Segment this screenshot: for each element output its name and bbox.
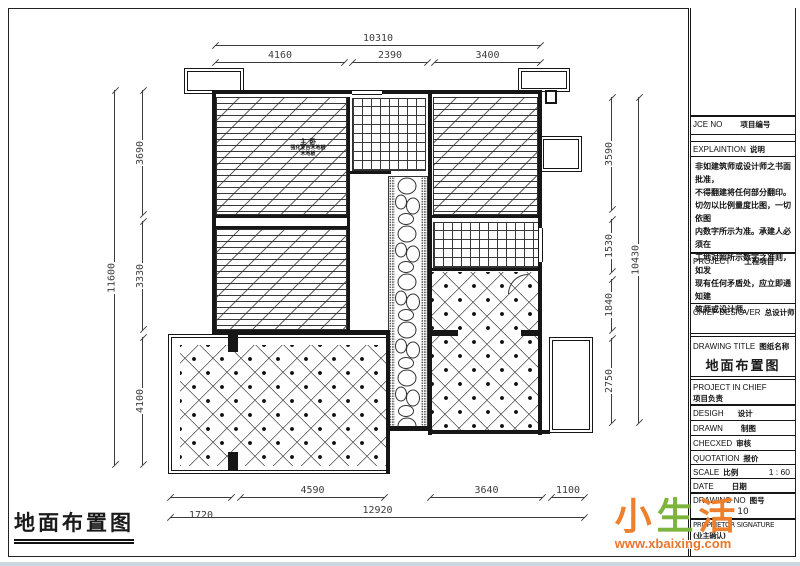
dim-left-seg3: 4100	[142, 337, 143, 465]
dim-bottom-seg2: 4590	[240, 497, 385, 498]
dim-label: 10310	[362, 34, 394, 44]
dim-label: 1720	[188, 511, 214, 521]
chief-designer-label-zh: 总设计师	[765, 307, 795, 318]
wall	[386, 426, 432, 431]
divider	[691, 141, 795, 142]
dim-label: 2750	[605, 367, 615, 393]
dim-label: 11600	[107, 261, 117, 293]
dim-left-seg2: 3330	[142, 221, 143, 330]
dim-bottom-overall: 12920	[170, 517, 585, 518]
project-label-en: PROJECT	[693, 257, 730, 266]
dim-right-seg4: 2750	[611, 338, 612, 423]
dim-right-seg2: 1530	[611, 219, 612, 272]
dim-bottom-seg4: 1100	[551, 497, 585, 498]
titleblock-row-checked: CHECXED 审核	[693, 438, 794, 449]
pebble-pattern	[395, 177, 421, 427]
titleblock-row-project: PROJECT 工程项目	[693, 256, 794, 267]
wall	[386, 334, 390, 474]
diamond-tile-living-room	[180, 345, 386, 466]
titleblock-row-project-in-chief-zh: 项目负责	[693, 393, 794, 404]
divider	[691, 156, 795, 157]
watermark: 小 生 活 www.xbaixing.com	[608, 496, 738, 551]
wall	[428, 94, 432, 435]
wall	[432, 268, 542, 271]
dim-left-overall: 11600	[114, 90, 115, 465]
divider	[691, 303, 795, 304]
dim-right-seg3: 1840	[611, 279, 612, 331]
watermark-char: 生	[657, 494, 690, 538]
dim-label: 4590	[299, 486, 325, 496]
dim-label: 3400	[474, 51, 500, 61]
walkway-stipple-right	[421, 177, 427, 427]
explanation-label-zh: 说明	[750, 144, 765, 155]
bay-window-right-upper	[540, 136, 582, 172]
wall	[212, 94, 216, 334]
titleblock-row-chief-designer: CHIEF DESIGVER 总设计师	[693, 307, 794, 318]
wall-stub	[428, 330, 458, 336]
wood-floor-bedroom-3	[433, 97, 538, 215]
dim-left-seg1: 3690	[142, 90, 143, 215]
dim-right-overall: 10430	[638, 97, 639, 423]
project-in-chief-label-zh: 项目负责	[693, 393, 723, 404]
titleblock-row-design: DESIGH 设计	[693, 408, 794, 419]
dim-bottom-seg1: 1720	[170, 497, 232, 498]
title-block: JCE NO 项目编号 EXPLAINTION 说明 非如建筑师或设计师之书面批…	[688, 8, 795, 556]
titleblock-row-quotation: QUOTATION 报价	[693, 453, 794, 464]
titleblock-row-scale: SCALE 比例 1 : 60	[693, 467, 794, 478]
divider	[691, 134, 795, 135]
dim-top-overall: 10310	[215, 45, 541, 46]
titleblock-row-drawing-title: DRAWING TITLE 图纸名称	[693, 341, 794, 352]
page-title: 地面布置图	[14, 507, 134, 541]
dim-label: 1530	[605, 232, 615, 258]
checked-label-zh: 审核	[736, 438, 751, 449]
dim-bottom-seg3: 3640	[430, 497, 543, 498]
drawing-no-label-zh: 图号	[750, 495, 765, 506]
dim-label: 10430	[631, 244, 641, 276]
quotation-label-zh: 报价	[743, 453, 758, 464]
bay-window-top-right	[518, 68, 570, 92]
titleblock-row-project-no: JCE NO 项目编号	[693, 119, 794, 130]
scale-label-zh: 比例	[723, 467, 738, 478]
dim-label: 3590	[605, 140, 615, 166]
wall	[538, 94, 542, 435]
quotation-label-en: QUOTATION	[693, 454, 739, 463]
scale-label-en: SCALE	[693, 468, 719, 477]
divider	[691, 478, 795, 479]
dim-label: 4160	[267, 51, 293, 61]
titleblock-row-explanation: EXPLAINTION 说明	[693, 144, 794, 155]
wall	[214, 215, 349, 218]
drawing-title-value: 地面布置图	[691, 355, 795, 374]
dim-label: 1840	[605, 292, 615, 318]
wall-notch	[545, 90, 557, 104]
wall	[214, 330, 390, 334]
dim-label: 3640	[473, 486, 499, 496]
dim-label: 2390	[377, 51, 403, 61]
room-label-master-bedroom: 主 卧 强化复合木地板 木地板	[282, 136, 334, 158]
divider	[691, 252, 795, 254]
dim-top-seg3: 3400	[434, 62, 541, 63]
dim-label: 12920	[361, 506, 393, 516]
wood-floor-bedroom-2	[216, 229, 347, 330]
project-in-chief-label-en: PROJECT IN CHIEF	[693, 383, 767, 392]
project-label-zh: 工程项目	[744, 256, 774, 267]
divider	[691, 115, 795, 117]
wall-stub	[521, 330, 542, 336]
chief-designer-label-en: CHIEF DESIGVER	[693, 308, 761, 317]
divider	[691, 464, 795, 465]
date-label-zh: 日期	[732, 481, 747, 492]
explanation-label-en: EXPLAINTION	[693, 145, 746, 154]
bay-window-right-lower	[549, 337, 593, 433]
drawing-title-label-en: DRAWING TITLE	[693, 342, 755, 351]
date-label-en: DATE	[693, 482, 714, 491]
diamond-tile-dining-room	[432, 272, 542, 430]
design-label-en: DESIGH	[693, 409, 724, 418]
project-no-label-en: JCE NO	[693, 120, 722, 129]
explanation-text: 非如建筑师或设计师之书面批准， 不得翻建将任何部分翻印。 切勿以比例量度比图，一…	[695, 160, 793, 316]
divider	[691, 376, 795, 380]
wall	[347, 97, 350, 333]
checked-label-en: CHECXED	[693, 439, 732, 448]
dim-label: 3690	[136, 139, 146, 165]
window-edge	[0, 562, 800, 566]
scale-value: 1 : 60	[769, 467, 794, 477]
drawing-title-label-zh: 图纸名称	[759, 341, 789, 352]
drawn-label-en: DRAWN	[693, 424, 723, 433]
design-label-zh: 设计	[738, 408, 753, 419]
wall	[428, 430, 550, 434]
wall-stub	[228, 452, 238, 470]
project-no-label-zh: 项目编号	[740, 119, 770, 130]
tile-floor-entry	[352, 98, 426, 171]
divider	[691, 333, 795, 337]
pebble-walkway	[388, 176, 428, 428]
dim-label: 3330	[136, 262, 146, 288]
window-right	[538, 228, 543, 262]
watermark-url: www.xbaixing.com	[608, 536, 738, 551]
titleblock-row-project-in-chief: PROJECT IN CHIEF	[693, 383, 794, 392]
divider	[691, 420, 795, 421]
wall	[349, 171, 391, 174]
watermark-char: 小	[615, 494, 648, 538]
wall	[432, 215, 542, 218]
wall	[214, 226, 349, 229]
room-note: 木地板	[282, 151, 334, 158]
dim-top-seg1: 4160	[215, 62, 345, 63]
tile-floor-bathroom	[433, 222, 541, 268]
titleblock-row-drawn: DRAWN 制图	[693, 423, 794, 434]
watermark-logo: 小 生 活	[608, 496, 738, 536]
window-top	[352, 90, 382, 95]
titleblock-row-date: DATE 日期	[693, 481, 794, 492]
dim-label: 1100	[555, 486, 581, 496]
drawn-label-zh: 制图	[741, 423, 756, 434]
divider	[691, 404, 795, 406]
watermark-char: 活	[698, 494, 731, 538]
dim-top-seg2: 2390	[352, 62, 428, 63]
divider	[691, 450, 795, 451]
divider	[691, 435, 795, 436]
wall-stub	[228, 334, 238, 352]
dim-right-seg1: 3590	[611, 97, 612, 210]
dim-label: 4100	[136, 388, 146, 414]
